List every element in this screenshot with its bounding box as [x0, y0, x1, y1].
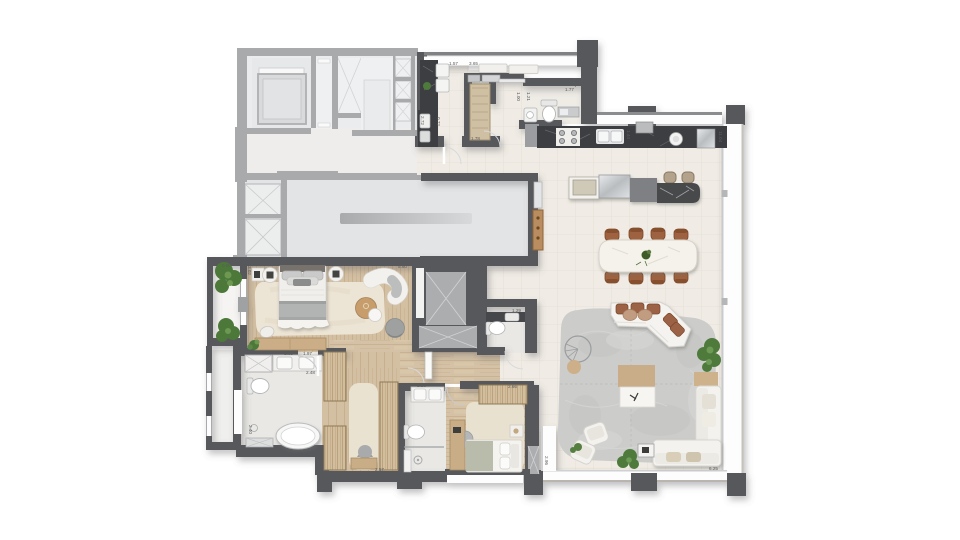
svg-text:2.48: 2.48 — [306, 370, 315, 375]
svg-text:1.29: 1.29 — [512, 308, 521, 313]
svg-text:2.96: 2.96 — [544, 456, 549, 465]
svg-text:1.44: 1.44 — [626, 130, 631, 139]
svg-text:0.67: 0.67 — [572, 78, 577, 87]
svg-text:1.77: 1.77 — [565, 87, 574, 92]
svg-text:2.72: 2.72 — [420, 116, 425, 125]
svg-text:1.97: 1.97 — [303, 351, 312, 356]
svg-text:1.57: 1.57 — [449, 61, 458, 66]
svg-text:1.21: 1.21 — [526, 92, 531, 101]
svg-text:3.02: 3.02 — [247, 266, 252, 275]
svg-text:1.28: 1.28 — [417, 383, 426, 388]
svg-text:5.60: 5.60 — [398, 264, 407, 269]
svg-text:0.90: 0.90 — [222, 263, 231, 268]
svg-text:2.66: 2.66 — [508, 384, 517, 389]
svg-text:2.62: 2.62 — [207, 326, 212, 335]
svg-text:2.57: 2.57 — [375, 467, 384, 472]
svg-text:11.04: 11.04 — [718, 131, 723, 143]
svg-text:1.78: 1.78 — [471, 136, 480, 141]
svg-text:6.25: 6.25 — [709, 466, 718, 471]
svg-text:2.40: 2.40 — [248, 425, 253, 434]
svg-text:1.18: 1.18 — [480, 338, 485, 347]
svg-text:0.72: 0.72 — [436, 117, 441, 126]
svg-text:1.00: 1.00 — [516, 92, 521, 101]
svg-text:3.65: 3.65 — [469, 61, 478, 66]
svg-text:1.85: 1.85 — [284, 351, 293, 356]
